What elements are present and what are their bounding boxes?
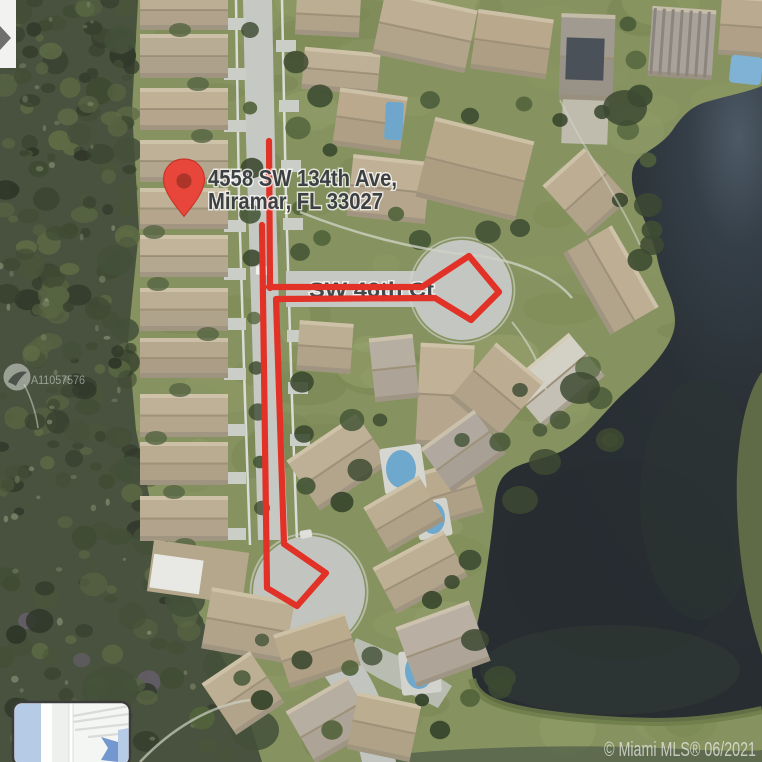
svg-text:A11057576: A11057576 [31,375,85,387]
svg-text:Miramar, FL 33027: Miramar, FL 33027 [208,188,383,214]
svg-text:© Miami MLS® 06/2021: © Miami MLS® 06/2021 [604,739,756,761]
